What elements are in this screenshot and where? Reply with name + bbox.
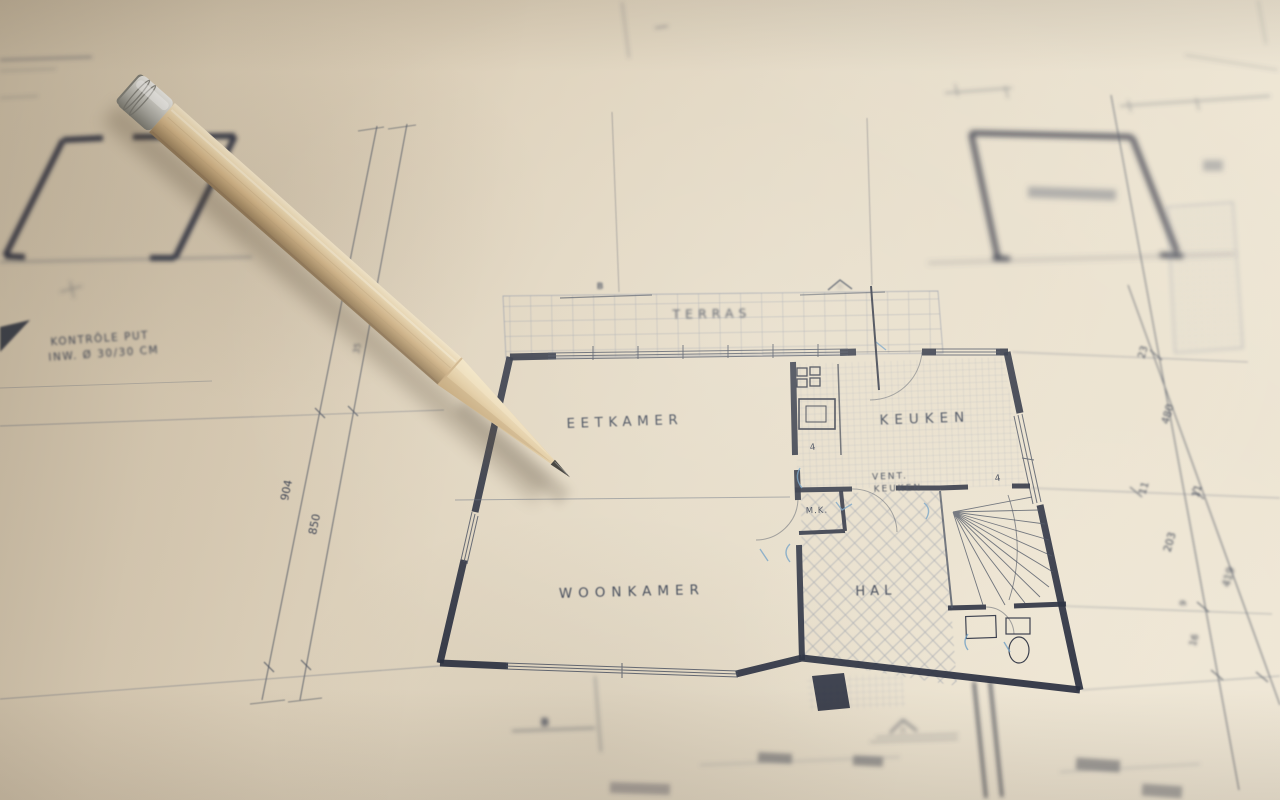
blueprint-photo: KONTRÔLE PUT INW. Ø 30/30 CM 904 850 35 … (0, 0, 1280, 800)
pencil (99, 72, 591, 516)
section-mark-a-top: A (837, 282, 843, 291)
entrance-step (812, 673, 850, 711)
leader-wedge-icon (0, 320, 30, 352)
room-label-hal: HAL (855, 583, 896, 599)
staircase (940, 491, 1053, 608)
kontrole-put-note: KONTRÔLE PUT INW. Ø 30/30 CM (0, 320, 212, 388)
pencil-body (149, 103, 463, 386)
right-pavement-grid (1167, 202, 1243, 353)
label-vent-keuken-line1: VENT. (872, 471, 908, 482)
dim-right-9: 9 (1178, 599, 1189, 608)
dim-right-11a: 11 (1138, 481, 1152, 496)
section-mark-b-bottom: B (541, 716, 549, 729)
room-label-keuken: KEUKEN (879, 409, 970, 428)
room-label-eetkamer: EETKAMER (566, 412, 683, 432)
pencil-shadow (102, 97, 571, 516)
section-mark-b-top: B (597, 282, 604, 292)
dim-right-203: 203 (1162, 531, 1179, 554)
dim-right-480: 480 (1160, 403, 1177, 426)
dim-left-904: 904 (278, 479, 295, 502)
toilet-fixtures (966, 615, 1030, 663)
label-vent-keuken-line2: KEUKEN (874, 483, 923, 495)
dim-right-11b: 11 (1191, 484, 1205, 499)
dim-left-850: 850 (306, 513, 323, 536)
room-divider-line (455, 497, 790, 500)
room-label-woonkamer: WOONKAMER (559, 582, 705, 602)
label-meterkast: M.K. (806, 506, 829, 517)
section-mark-a-bottom: A (900, 726, 907, 736)
top-edge-marks (622, 0, 1278, 112)
terras-floor-grid (503, 291, 943, 358)
dim-right-16: 16 (1188, 633, 1202, 648)
room-label-terras: TERRAS (671, 305, 751, 321)
dim-right-419: 419 (1221, 566, 1238, 589)
floor-plan-drawing: KONTRÔLE PUT INW. Ø 30/30 CM 904 850 35 … (0, 0, 1280, 800)
